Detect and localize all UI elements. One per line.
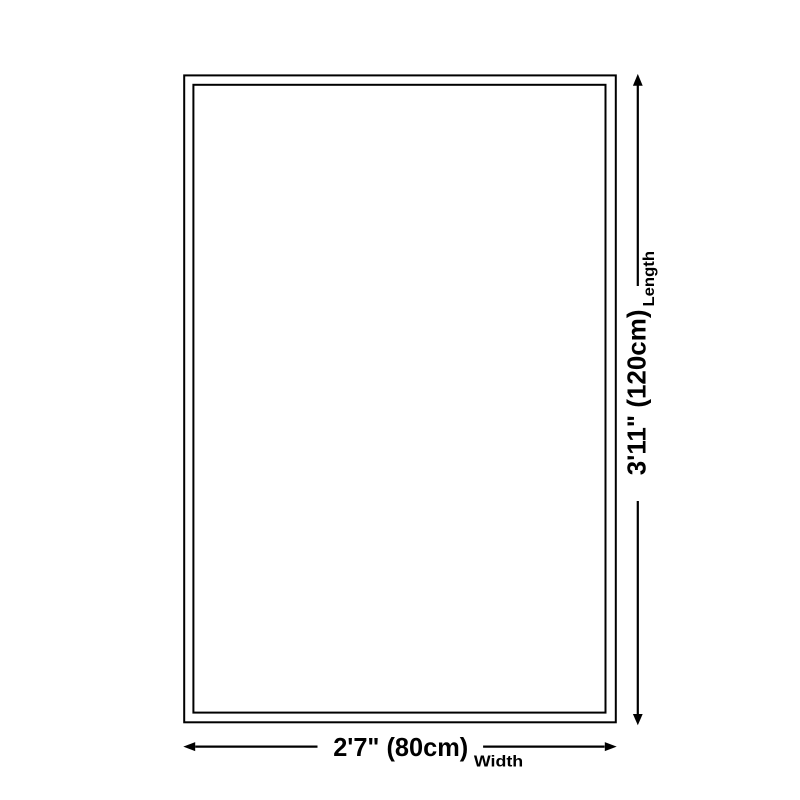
svg-text:Length: Length [641,251,658,307]
svg-text:Width: Width [474,753,523,770]
svg-text:3'11" (120cm): 3'11" (120cm) [622,310,652,476]
svg-text:2'7" (80cm): 2'7" (80cm) [333,732,468,762]
